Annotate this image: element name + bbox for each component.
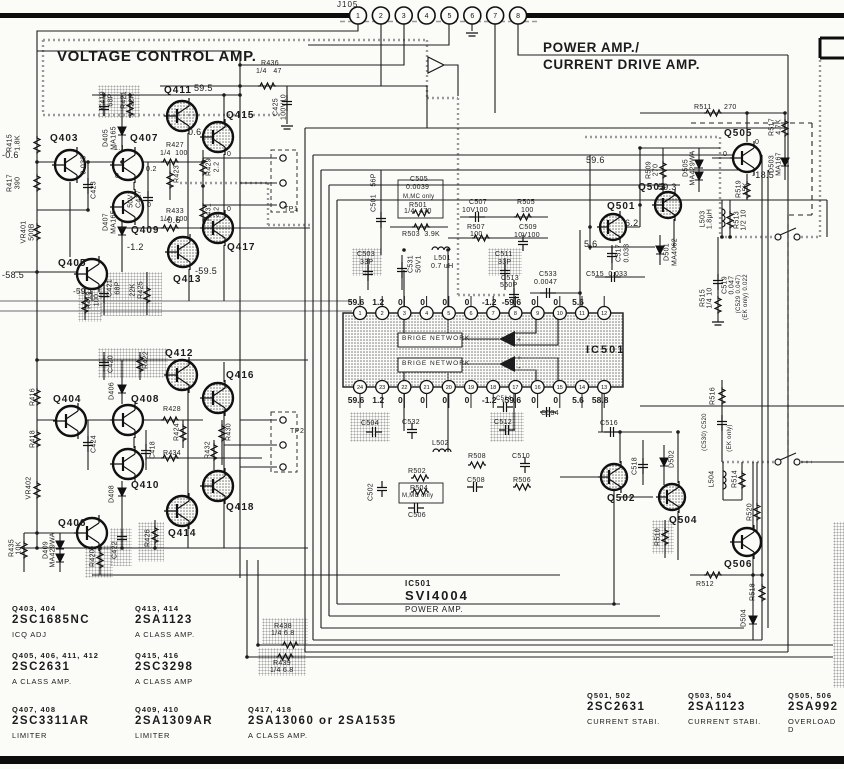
transistor-Q411 bbox=[164, 98, 197, 134]
svg-text:5: 5 bbox=[447, 13, 451, 20]
dio-icon bbox=[118, 488, 126, 496]
transistor-Q413 bbox=[165, 234, 198, 270]
testpoint-pin bbox=[280, 464, 286, 470]
gnd-icon bbox=[466, 33, 478, 36]
ic-pin-16: 16 bbox=[531, 381, 544, 394]
dio-icon bbox=[660, 458, 668, 466]
top-bar-right bbox=[526, 13, 844, 18]
transistor-Q408 bbox=[110, 402, 143, 438]
testpoint-pin bbox=[280, 202, 286, 208]
res-icon bbox=[412, 210, 430, 216]
ic-pin-17: 17 bbox=[509, 381, 522, 394]
transistor-Q404 bbox=[53, 403, 86, 439]
svg-text:6: 6 bbox=[470, 13, 474, 20]
connector-pin-7: 7 bbox=[487, 7, 504, 24]
cap-icon bbox=[366, 427, 382, 437]
transistor-Q416 bbox=[200, 380, 233, 416]
svg-text:19: 19 bbox=[468, 385, 474, 391]
ic-pin-24: 24 bbox=[354, 381, 367, 394]
connector-pin-1: 1 bbox=[350, 7, 367, 24]
ic-pin-18: 18 bbox=[487, 381, 500, 394]
transistor-Q403 bbox=[52, 147, 85, 183]
ic-pin-14: 14 bbox=[576, 381, 589, 394]
res-icon bbox=[411, 475, 429, 481]
bus-lines bbox=[0, 301, 352, 311]
transistor-Q407 bbox=[110, 147, 143, 183]
svg-text:8: 8 bbox=[514, 311, 517, 317]
schematic-canvas: 1234567891011122423222120191817161514131… bbox=[0, 0, 844, 769]
connector-pin-5: 5 bbox=[441, 7, 458, 24]
ic-pin-7: 7 bbox=[487, 307, 500, 320]
svg-text:1: 1 bbox=[356, 13, 360, 20]
ic-pin-1: 1 bbox=[354, 307, 367, 320]
ic-body bbox=[343, 313, 623, 387]
transistor-Q418 bbox=[200, 468, 233, 504]
cap-icon bbox=[408, 503, 424, 513]
svg-text:11: 11 bbox=[579, 311, 585, 317]
ic-pin-20: 20 bbox=[442, 381, 455, 394]
svg-text:24: 24 bbox=[357, 385, 363, 391]
svg-text:17: 17 bbox=[512, 385, 518, 391]
svg-text:23: 23 bbox=[379, 385, 385, 391]
transistor-Q405 bbox=[74, 256, 107, 292]
bridge-network-box-1 bbox=[398, 333, 462, 347]
transistor-Q412 bbox=[164, 357, 197, 393]
cap-icon bbox=[377, 481, 387, 497]
svg-text:2: 2 bbox=[379, 13, 383, 20]
ic-pin-12: 12 bbox=[598, 307, 611, 320]
shield-traces bbox=[43, 40, 820, 462]
transistor-Q506 bbox=[730, 525, 761, 559]
dio-icon bbox=[118, 385, 126, 393]
svg-text:14: 14 bbox=[579, 385, 585, 391]
connector-pin-6: 6 bbox=[464, 7, 481, 24]
bridge-network-box-2 bbox=[398, 358, 462, 372]
svg-text:18: 18 bbox=[490, 385, 496, 391]
connector-pin-8: 8 bbox=[510, 7, 527, 24]
svg-text:4: 4 bbox=[425, 311, 428, 317]
buffer-icon bbox=[428, 57, 444, 73]
testpoint-pin bbox=[280, 180, 286, 186]
svg-text:2: 2 bbox=[381, 311, 384, 317]
testpoint-pin bbox=[280, 442, 286, 448]
cap-icon bbox=[407, 423, 417, 439]
cap-icon bbox=[499, 425, 515, 435]
svg-text:15: 15 bbox=[557, 385, 563, 391]
testpoint-pin bbox=[280, 155, 286, 161]
ic-pin-6: 6 bbox=[465, 307, 478, 320]
ic-pin-9: 9 bbox=[531, 307, 544, 320]
transistor-Q504 bbox=[656, 481, 685, 513]
svg-text:6: 6 bbox=[469, 311, 472, 317]
cap-icon bbox=[497, 402, 513, 412]
res-icon bbox=[468, 462, 486, 468]
svg-text:1: 1 bbox=[358, 311, 361, 317]
res-icon bbox=[411, 489, 429, 495]
gnd-icon bbox=[281, 126, 293, 129]
ic-pin-4: 4 bbox=[420, 307, 433, 320]
ic-pin-5: 5 bbox=[442, 307, 455, 320]
transistor-Q503 bbox=[652, 189, 681, 221]
svg-text:7: 7 bbox=[492, 311, 495, 317]
top-bar-left bbox=[0, 13, 352, 18]
svg-text:22: 22 bbox=[401, 385, 407, 391]
svg-text:7: 7 bbox=[493, 13, 497, 20]
connector-pin-4: 4 bbox=[418, 7, 435, 24]
transistor-Q502 bbox=[598, 461, 627, 493]
ic-pin-21: 21 bbox=[420, 381, 433, 394]
svg-text:8: 8 bbox=[516, 13, 520, 20]
cap-icon bbox=[467, 482, 483, 492]
svg-text:16: 16 bbox=[535, 385, 541, 391]
dio-icon bbox=[749, 616, 757, 624]
dio-icon bbox=[695, 160, 703, 168]
transistor-Q417 bbox=[200, 210, 233, 246]
svg-text:5: 5 bbox=[447, 311, 450, 317]
transistor-Q410 bbox=[110, 446, 143, 482]
bottom-bar bbox=[0, 756, 844, 764]
ic-pin-19: 19 bbox=[465, 381, 478, 394]
schematic-page: 1234567891011122423222120191817161514131… bbox=[0, 0, 844, 769]
svg-text:12: 12 bbox=[601, 311, 607, 317]
res-icon bbox=[513, 484, 531, 490]
testpoint-pin bbox=[280, 417, 286, 423]
svg-text:4: 4 bbox=[425, 13, 429, 20]
svg-text:21: 21 bbox=[424, 385, 430, 391]
cap-icon bbox=[540, 407, 556, 417]
ic-pin-8: 8 bbox=[509, 307, 522, 320]
svg-text:3: 3 bbox=[402, 13, 406, 20]
ic-pin-23: 23 bbox=[376, 381, 389, 394]
cap-icon bbox=[518, 235, 528, 251]
ic-pin-22: 22 bbox=[398, 381, 411, 394]
transistor-Q406 bbox=[74, 515, 107, 551]
svg-text:20: 20 bbox=[446, 385, 452, 391]
svg-text:13: 13 bbox=[601, 385, 607, 391]
ic-pin-13: 13 bbox=[598, 381, 611, 394]
ic-pin-11: 11 bbox=[576, 307, 589, 320]
ic-pin-10: 10 bbox=[553, 307, 566, 320]
dio-icon bbox=[656, 246, 664, 254]
mc-option-box bbox=[399, 483, 443, 503]
ic-pin-3: 3 bbox=[398, 307, 411, 320]
dio-icon bbox=[56, 554, 64, 562]
connector-pin-2: 2 bbox=[372, 7, 389, 24]
svg-text:9: 9 bbox=[536, 311, 539, 317]
connector-pin-3: 3 bbox=[395, 7, 412, 24]
svg-text:10: 10 bbox=[557, 311, 563, 317]
transistor-Q501 bbox=[597, 211, 626, 243]
svg-text:3: 3 bbox=[403, 311, 406, 317]
transistor-Q415 bbox=[200, 119, 233, 155]
transistor-Q414 bbox=[164, 493, 197, 529]
ic-pin-2: 2 bbox=[376, 307, 389, 320]
ic-pin-15: 15 bbox=[553, 381, 566, 394]
dio-icon bbox=[118, 127, 126, 135]
top-right-bracket bbox=[820, 38, 844, 58]
gnd-icon bbox=[712, 322, 724, 325]
transistor-Q409 bbox=[110, 189, 143, 225]
cap-icon bbox=[520, 457, 530, 473]
dio-icon bbox=[695, 172, 703, 180]
